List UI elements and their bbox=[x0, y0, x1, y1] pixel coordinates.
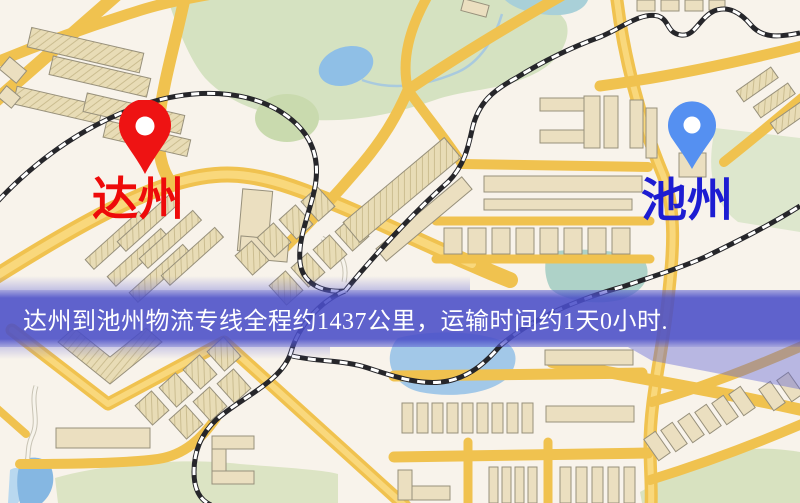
origin-pin-icon[interactable] bbox=[116, 100, 174, 176]
destination-city-label: 池州 bbox=[641, 178, 733, 224]
route-info-text: 达州到池州物流专线全程约1437公里，运输时间约1天0小时. bbox=[23, 301, 668, 336]
destination-pin-shape[interactable] bbox=[668, 101, 716, 169]
destination-pin-icon[interactable] bbox=[665, 101, 719, 171]
banner-ribbon-fade-bottom bbox=[0, 347, 330, 359]
origin-pin-hole bbox=[136, 117, 155, 136]
origin-city-label: 达州 bbox=[92, 177, 184, 223]
route-map: 达州到池州物流专线全程约1437公里，运输时间约1天0小时. 达州 池州 bbox=[0, 0, 800, 503]
origin-pin-shape[interactable] bbox=[119, 100, 171, 174]
banner-ribbon-fade-top bbox=[0, 276, 470, 290]
map-background bbox=[0, 0, 800, 503]
route-info-banner: 达州到池州物流专线全程约1437公里，运输时间约1天0小时. bbox=[0, 290, 800, 347]
destination-pin-hole bbox=[684, 117, 701, 134]
